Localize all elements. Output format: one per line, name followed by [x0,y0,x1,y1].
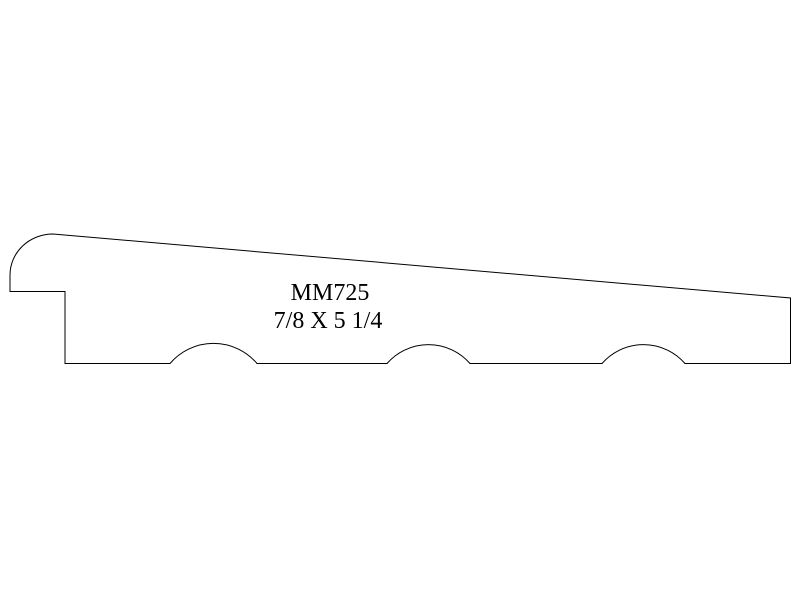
profile-drawing-page: MM725 7/8 X 5 1/4 [0,0,800,600]
profile-drawing-canvas: MM725 7/8 X 5 1/4 [0,0,800,600]
moulding-profile-outline [10,234,791,364]
dimensions-label: 7/8 X 5 1/4 [274,308,383,334]
part-number-label: MM725 [291,280,370,306]
